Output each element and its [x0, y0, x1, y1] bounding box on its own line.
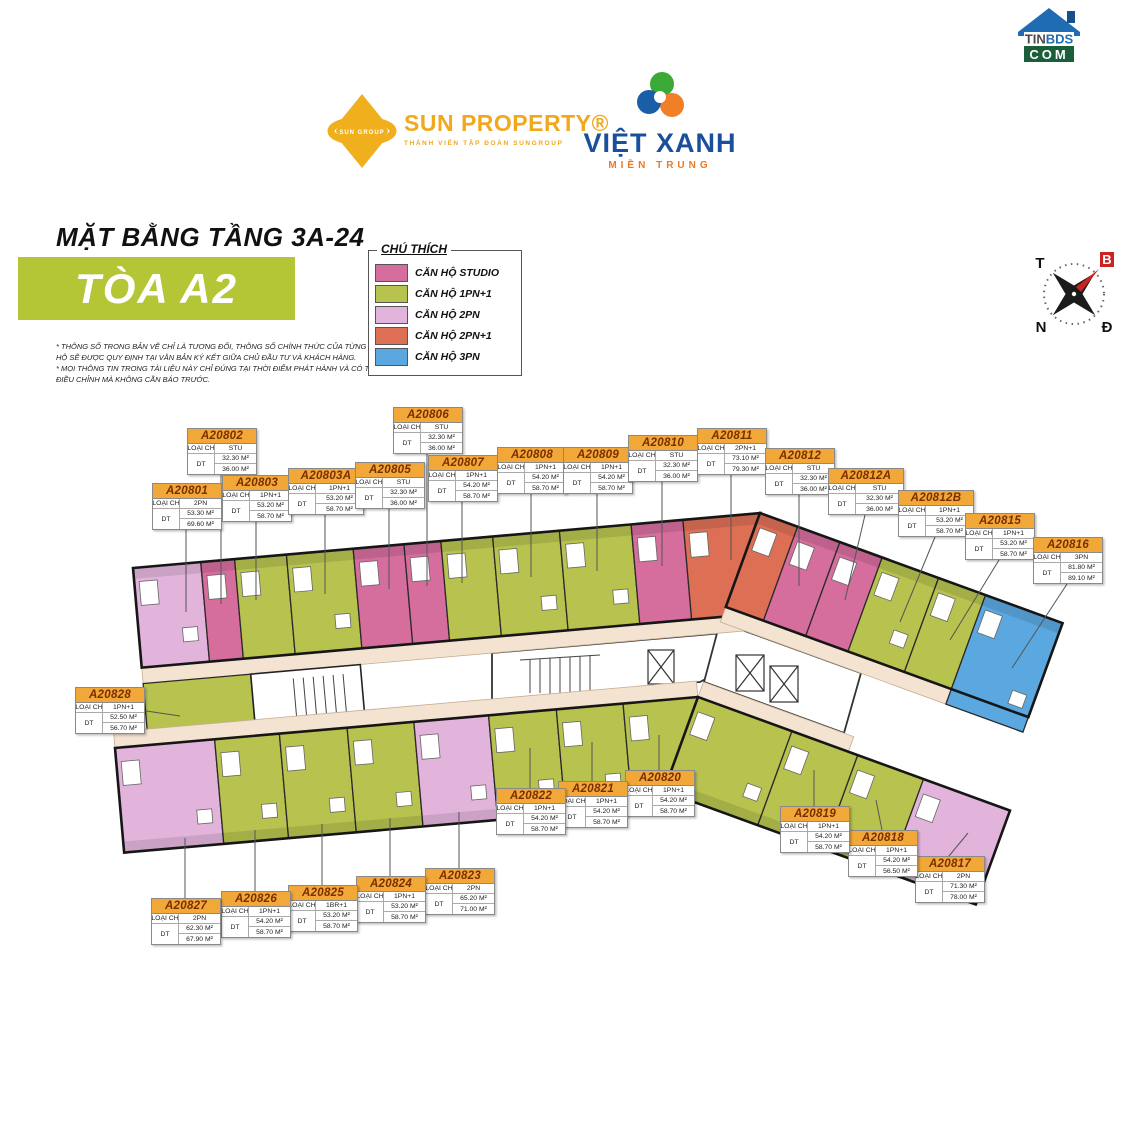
compass-north-label: B [1102, 252, 1111, 267]
legend-label: CĂN HỘ 1PN+1 [415, 288, 492, 300]
legend-title: CHÚ THÍCH [377, 242, 451, 256]
viet-xanh-icon [628, 70, 692, 126]
tinbds-house-icon: TINBDS COM [1012, 6, 1086, 66]
viet-xanh-title: VIỆT XANH [575, 128, 745, 159]
unit-area-A20807 [441, 537, 502, 641]
unit-area-A20810 [631, 520, 692, 624]
legend-swatch-2pn [375, 306, 408, 324]
legend-swatch-1pn1 [375, 285, 408, 303]
viet-xanh-logo: VIỆT XANH MIỀN TRUNG [575, 70, 745, 170]
unit-area-A20823 [414, 715, 498, 826]
unit-area-A20803A [286, 549, 361, 654]
unit-area-A20825 [279, 728, 356, 839]
compass-rose: T B N Đ [1030, 248, 1118, 340]
unit-area-A20824 [347, 722, 423, 832]
compass-south-label: N [1036, 319, 1047, 336]
legend-label: CĂN HỘ STUDIO [415, 267, 499, 279]
unit-area-A20821 [556, 704, 632, 814]
tower-title-box: TÒA A2 [18, 257, 295, 320]
unit-area-A20808 [493, 531, 568, 636]
compass-needle [1076, 269, 1099, 292]
disclaimer-line-1: * THÔNG SỐ TRONG BẢN VẼ CHỈ LÀ TƯƠNG ĐỐI… [56, 342, 391, 364]
disclaimer-text: * THÔNG SỐ TRONG BẢN VẼ CHỈ LÀ TƯƠNG ĐỐI… [56, 342, 391, 386]
tinbds-com-text: COM [1029, 47, 1068, 62]
legend-swatch-3pn [375, 348, 408, 366]
unit-area-A20803 [235, 555, 296, 659]
disclaimer-line-2: * MỌI THÔNG TIN TRONG TÀI LIỆU NÀY CHỈ Đ… [56, 364, 391, 386]
unit-area-A20801 [133, 562, 209, 668]
legend: CHÚ THÍCH CĂN HỘ STUDIO CĂN HỘ 1PN+1 CĂN… [368, 250, 522, 376]
legend-label: CĂN HỘ 3PN [415, 351, 480, 363]
legend-swatch-2pn1 [375, 327, 408, 345]
legend-item-2pn: CĂN HỘ 2PN [375, 306, 515, 324]
unit-area-A20827 [115, 739, 224, 852]
unit-area-A20826 [215, 734, 289, 844]
sun-property-logo: SUN GROUP SUN PROPERTY® THÀNH VIÊN TẬP Đ… [326, 92, 576, 170]
sun-group-icon: SUN GROUP [326, 92, 398, 170]
page-title: MẶT BẰNG TẦNG 3A-24 [56, 222, 365, 253]
compass-west-label: T [1035, 255, 1044, 272]
legend-label: CĂN HỘ 2PN+1 [415, 330, 492, 342]
svg-text:TINBDS: TINBDS [1025, 32, 1074, 47]
legend-swatch-studio [375, 264, 408, 282]
legend-item-2pn1: CĂN HỘ 2PN+1 [375, 327, 515, 345]
legend-item-3pn: CĂN HỘ 3PN [375, 348, 515, 366]
tower-title: TÒA A2 [75, 265, 238, 313]
svg-text:SUN GROUP: SUN GROUP [339, 130, 384, 136]
unit-area-A20809 [559, 524, 639, 630]
compass-east-label: Đ [1102, 319, 1113, 336]
legend-label: CĂN HỘ 2PN [415, 309, 480, 321]
tinbds-logo: TINBDS COM [1012, 6, 1086, 66]
unit-area-A20822 [489, 709, 566, 820]
legend-item-studio: CĂN HỘ STUDIO [375, 264, 515, 282]
legend-item-1pn1: CĂN HỘ 1PN+1 [375, 285, 515, 303]
unit-area-A20805 [353, 544, 413, 648]
viet-xanh-subtitle: MIỀN TRUNG [575, 160, 745, 171]
